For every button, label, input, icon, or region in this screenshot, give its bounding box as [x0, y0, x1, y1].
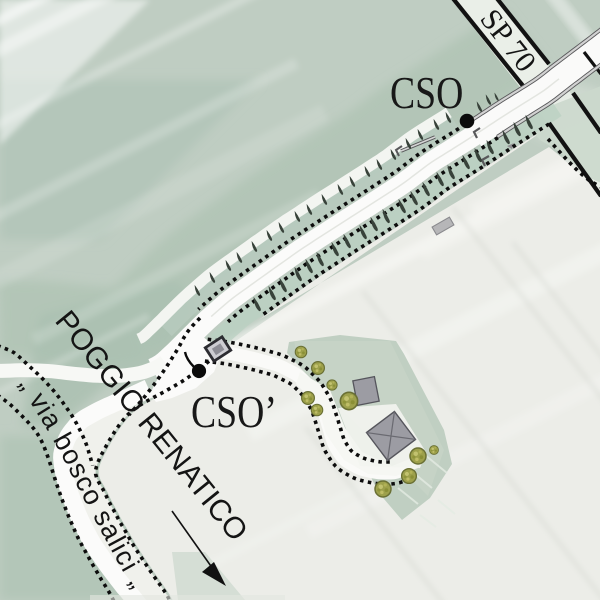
svg-text:CSO’: CSO’ [191, 388, 277, 438]
svg-text:CSO: CSO [390, 69, 463, 119]
